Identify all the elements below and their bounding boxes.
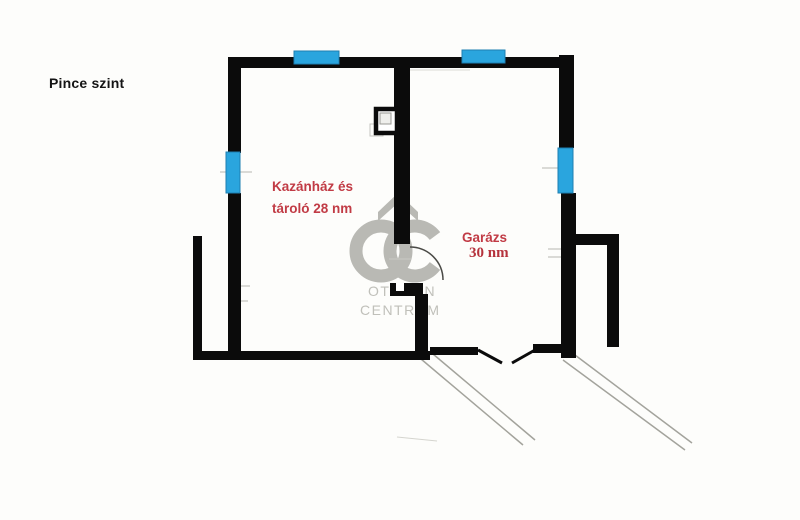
ramp-line-left-inner (433, 354, 535, 440)
garage-door (478, 350, 535, 363)
garage-door-leaf-left (478, 350, 502, 363)
chimney (370, 109, 397, 136)
bottom-wall-left-room (193, 351, 430, 360)
window-top-left (294, 51, 339, 64)
garage-bottom-wall-right (533, 344, 561, 353)
outer-left-retaining-wall (193, 236, 202, 351)
chimney-flue (380, 113, 391, 124)
interior-lower-wall-vertical (415, 294, 428, 358)
window-left-wall (226, 152, 240, 193)
left-wall-upper (228, 57, 241, 153)
ramp-faint-line (397, 437, 437, 441)
window-right-wall (558, 148, 573, 193)
right-wall-lower (561, 193, 576, 358)
left-wall-lower (228, 193, 241, 360)
ramp-line-right-inner (563, 360, 685, 450)
garage-bottom-wall-left (430, 347, 478, 355)
window-top-right (462, 50, 505, 63)
right-wall-upper (559, 55, 574, 148)
wall-notch (396, 283, 404, 291)
ramp-line-right-outer (575, 355, 692, 443)
scan-tick-marks (220, 70, 563, 301)
walls (193, 55, 619, 360)
floorplan-drawing (0, 0, 800, 515)
garage-door-leaf-right (512, 350, 535, 363)
floorplan-page: OTTHON CENTRUM (0, 0, 800, 515)
ramp-line-left-outer (421, 359, 523, 445)
interior-door-swing-arc (410, 247, 443, 280)
interior-dividing-wall (394, 57, 410, 244)
annex-wall-horizontal (575, 234, 619, 245)
annex-wall-vertical (607, 245, 619, 347)
driveway-ramp-lines (397, 354, 692, 450)
